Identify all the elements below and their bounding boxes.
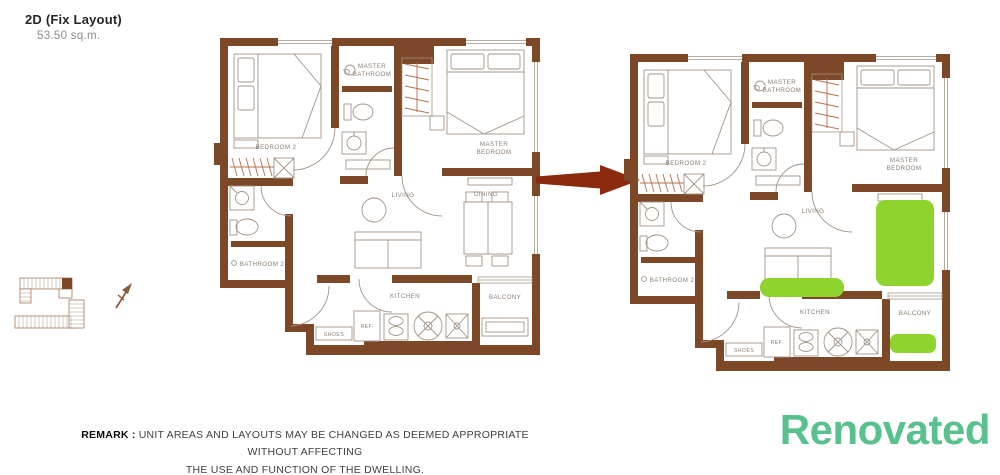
floor-plan-renovated: REF.SHOESBEDROOM 2MASTERBATHROOMMASTERBE… (624, 44, 958, 378)
floor-plan-sheet: 2D (Fix Layout) 53.50 sq.m. REF.SHOESBED… (0, 0, 1000, 475)
key-plan-unit-highlight (62, 278, 72, 289)
remark-text: REMARK :UNIT AREAS AND LAYOUTS MAY BE CH… (55, 427, 555, 475)
label-balcony: BALCONY (489, 294, 521, 301)
label-balcony: BALCONY (899, 310, 931, 317)
floor-plan-original: REF.SHOESBEDROOM 2MASTERBATHROOMMASTERBE… (214, 28, 548, 362)
north-arrow-icon (116, 283, 132, 308)
label-master-bedroom: BEDROOM (477, 149, 512, 156)
label-master-bathroom: BATHROOM (353, 71, 392, 78)
label-bedroom-2: BEDROOM 2 (256, 144, 297, 151)
label-kitchen: KITCHEN (800, 309, 830, 316)
key-plan (12, 262, 142, 354)
page-title: 2D (Fix Layout) (25, 12, 122, 27)
label-kitchen: KITCHEN (390, 293, 420, 300)
label-bathroom-2: BATHROOM 2 (240, 261, 285, 268)
label-dining: DINING (474, 191, 498, 198)
label-bedroom-2: BEDROOM 2 (666, 160, 707, 167)
label-master-bathroom: MASTER (358, 63, 386, 70)
label-master-bedroom: BEDROOM (887, 165, 922, 172)
label-ref: REF. (361, 324, 374, 330)
label-living: LIVING (802, 208, 825, 215)
label-bathroom-2: BATHROOM 2 (650, 277, 695, 284)
renovated-label: Renovated (780, 406, 990, 454)
unit-area-label: 53.50 sq.m. (37, 30, 100, 42)
label-master-bathroom: BATHROOM (763, 87, 802, 94)
renovation-highlight-daybed (876, 200, 934, 286)
label-shoes: SHOES (324, 332, 344, 338)
renovation-highlight-sofa-area (760, 278, 844, 297)
renovation-highlight-balcony (890, 334, 936, 353)
label-ref: REF. (771, 340, 784, 346)
label-master-bedroom: MASTER (480, 141, 508, 148)
remark-label: REMARK : (81, 429, 136, 441)
label-master-bedroom: MASTER (890, 157, 918, 164)
label-shoes: SHOES (734, 348, 754, 354)
label-master-bathroom: MASTER (768, 79, 796, 86)
label-living: LIVING (392, 192, 415, 199)
